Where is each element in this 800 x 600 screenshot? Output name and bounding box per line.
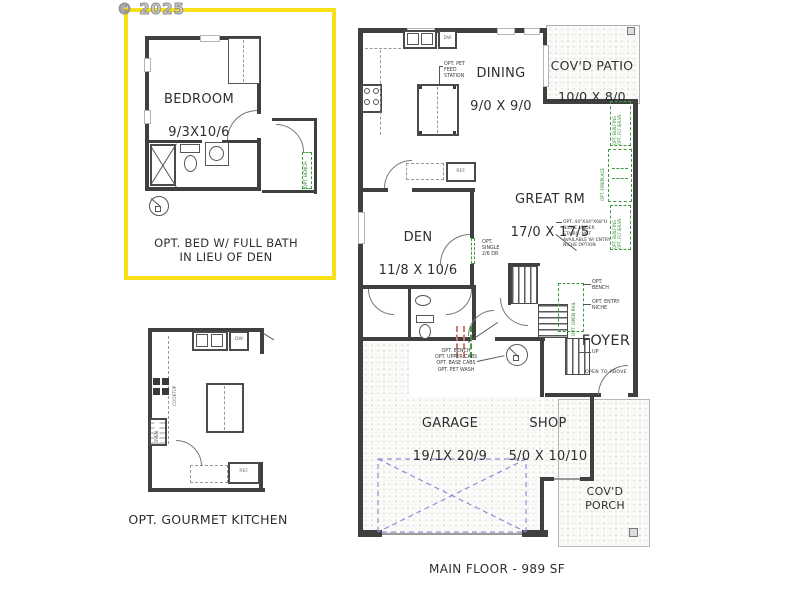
island-center-line — [437, 87, 438, 133]
foyer-sub: OPEN TO ABOVE — [578, 370, 634, 376]
floor-plan-sheet: © 2025 OPT. BENCH BEDROOM 9/3X10/6 OPT. … — [0, 0, 800, 600]
den-label: DEN 11/8 X 10/6 — [376, 214, 460, 295]
dining-dims: 9/0 X 9/0 — [460, 99, 542, 115]
opt-single-door-dash — [471, 238, 475, 264]
dishwasher-label: DW — [229, 337, 249, 343]
garage-door-line — [382, 533, 522, 535]
den-name: DEN — [376, 230, 460, 246]
patio-label: COV'D PATIO 10/0 X 8/0 — [547, 42, 637, 120]
door-swing — [176, 440, 202, 466]
oven-label: OVEN — [154, 421, 159, 443]
burner — [373, 99, 379, 105]
cooktop-burner — [153, 378, 160, 385]
great-rm-name: GREAT RM — [504, 192, 596, 208]
wall — [145, 187, 261, 191]
window — [358, 212, 365, 244]
counter-edge-line — [365, 48, 401, 49]
bedroom-room-name: BEDROOM — [143, 92, 255, 108]
island-corner — [453, 131, 456, 134]
shop-dims: 5/0 X 10/10 — [506, 449, 590, 465]
leader-line — [583, 284, 591, 285]
bath-sink — [415, 295, 431, 306]
wall — [470, 188, 474, 238]
patio-dims: 10/0 X 8/0 — [547, 89, 637, 105]
wall — [358, 188, 388, 192]
wall — [257, 138, 261, 191]
window — [200, 35, 220, 42]
copyright-watermark: © 2025 — [117, 0, 185, 18]
patio-post — [627, 27, 635, 35]
opt-single-door-note: OPT. SINGLE 2/6 DR — [482, 240, 499, 259]
wall — [408, 288, 411, 338]
toilet-bowl — [419, 324, 431, 339]
wall — [262, 190, 317, 193]
main-floor-caption: MAIN FLOOR - 989 SF — [397, 562, 597, 577]
counter-dashed — [406, 163, 444, 180]
opt-bench-note: OPT. BENCH — [592, 280, 609, 292]
burner — [364, 88, 370, 94]
water-heater-detail — [155, 206, 161, 212]
dining-name: DINING — [460, 66, 542, 82]
toilet-bowl — [184, 155, 197, 172]
wall — [148, 328, 152, 492]
den-dims: 11/8 X 10/6 — [376, 263, 460, 279]
wall — [358, 337, 470, 341]
sink-basin — [211, 334, 223, 347]
porch-post — [629, 528, 638, 537]
dining-label: DINING 9/0 X 9/0 — [460, 50, 542, 131]
bedroom-room-dims: 9/3X10/6 — [143, 125, 255, 141]
wall — [148, 488, 265, 492]
counter-dashed — [190, 465, 228, 483]
sink-basin — [196, 334, 208, 347]
fireplace-dash — [612, 178, 628, 179]
mudroom-options-note: OPT. BENCH OPT. UPPER CABS OPT. BASE CAB… — [428, 349, 484, 374]
wall — [272, 118, 317, 121]
shop-label: SHOP 5/0 X 10/10 — [506, 400, 590, 481]
porch-label: COV'D PORCH — [579, 485, 631, 513]
wall — [540, 478, 544, 534]
bedroom-inset-caption: OPT. BED W/ FULL BATH IN LIEU OF DEN — [126, 236, 326, 265]
wall — [540, 337, 544, 397]
opt-bench-label: OPT. BENCH — [304, 154, 310, 188]
island-center-line — [224, 386, 225, 430]
island-corner — [453, 86, 456, 89]
window — [144, 58, 151, 72]
wall — [590, 397, 594, 481]
leader-line — [439, 66, 440, 84]
burner — [364, 99, 370, 105]
burner — [373, 88, 379, 94]
open-rail-option-label: OPT. OPEN RAIL — [572, 300, 578, 336]
toilet-tank — [416, 315, 434, 323]
foyer-label: FOYER OPEN TO ABOVE — [578, 312, 634, 396]
fireplace-option-box — [608, 149, 632, 202]
counter-edge-line — [380, 50, 381, 135]
foyer-name: FOYER — [578, 332, 634, 350]
island-corner — [419, 86, 422, 89]
fireplace-dash — [612, 168, 628, 169]
sink-basin — [421, 33, 433, 45]
garage-name: GARAGE — [408, 416, 492, 432]
builtins-option-label: OPT. BUILT-INS OPT. FLT SHLVS — [612, 207, 622, 249]
cooktop-burner — [153, 388, 160, 395]
wall — [314, 118, 317, 194]
cooktop-burner — [162, 388, 169, 395]
island-corner — [419, 131, 422, 134]
kitchen-island — [206, 383, 244, 433]
shop-name: SHOP — [506, 416, 590, 432]
kitchen-inset-caption: OPT. GOURMET KITCHEN — [127, 512, 289, 528]
garage-dims: 19/1X 20/9 — [408, 449, 492, 465]
door-swing — [276, 124, 304, 152]
window — [524, 28, 540, 35]
great-rm-label: GREAT RM 17/0 X 17/5 — [504, 176, 596, 257]
great-rm-dims: 17/0 X 17/5 — [504, 225, 596, 241]
leader-line — [583, 304, 591, 305]
kitchen-island — [417, 84, 459, 136]
stairs — [511, 266, 538, 304]
refrigerator-label: REF. — [446, 169, 476, 175]
window — [497, 28, 515, 35]
cooktop-burner — [162, 378, 169, 385]
cooktop-label: COOKTOP — [172, 370, 177, 406]
dishwasher-label: DW — [438, 36, 457, 42]
sink-basin — [407, 33, 419, 45]
fireplace-option-label: OPT. FIREPLACE — [600, 151, 605, 201]
refrigerator-label: REF. — [228, 469, 260, 475]
patio-name: COV'D PATIO — [547, 58, 637, 74]
bedroom-room-label: BEDROOM 9/3X10/6 — [143, 76, 255, 157]
wall — [412, 188, 475, 192]
garage-label: GARAGE 19/1X 20/9 — [408, 400, 492, 481]
opt-entry-niche-note: OPT. ENTRY NICHE — [592, 300, 620, 312]
